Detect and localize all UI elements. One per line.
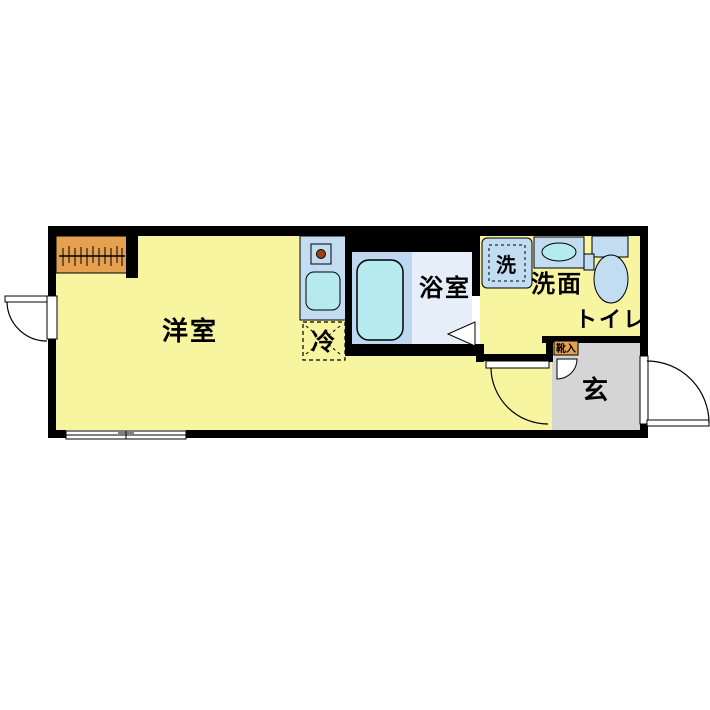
floorplan-page: 洋室 浴室 洗面 洗 トイレ 玄 冷 靴入 <box>0 0 710 710</box>
wall-outer-bottom <box>186 430 648 438</box>
hallway-door-leaf <box>486 361 549 368</box>
wall-outer-bottom-left <box>48 430 66 438</box>
wall-outer-left-upper <box>48 226 56 296</box>
wall-outer-left-lower <box>48 339 56 438</box>
left-door-swing-arc <box>7 302 47 341</box>
wall-bathroom-right <box>472 252 480 296</box>
entry-door-leaf <box>647 420 709 426</box>
entry-door-swing-arc <box>647 361 709 423</box>
wall-outer-right-upper <box>640 226 648 356</box>
wall-bathroom-bottom <box>345 344 484 356</box>
bathtub <box>357 260 403 340</box>
refrigerator-label: 冷 <box>311 328 337 356</box>
floorplan-drawing: 洋室 浴室 洗面 洗 トイレ 玄 冷 靴入 <box>0 0 710 710</box>
living-room-label: 洋室 <box>162 316 218 347</box>
left-door-opening <box>47 296 57 339</box>
wall-hallway <box>484 354 553 361</box>
toilet-label: トイレ <box>575 308 647 333</box>
vanity-basin <box>542 243 576 261</box>
wall-kitchen-bathroom <box>345 226 352 356</box>
bathroom-label: 浴室 <box>419 274 471 302</box>
kitchen-sink <box>306 272 340 310</box>
shoe-cabinet-label: 靴入 <box>556 342 576 355</box>
entrance-label: 玄 <box>582 375 610 406</box>
washer-label: 洗 <box>496 253 518 277</box>
entry-door-opening <box>640 356 648 424</box>
wall-band-above-bathroom <box>345 226 480 252</box>
left-door-leaf <box>5 296 47 302</box>
wall-jog <box>476 344 484 362</box>
toilet-bowl <box>594 255 628 303</box>
stove-burner-icon <box>317 250 326 259</box>
vanity-label: 洗面 <box>531 270 583 298</box>
toilet-flush-handle <box>584 254 594 270</box>
closet-wall-stub <box>126 236 138 278</box>
toilet-tank <box>592 236 628 257</box>
